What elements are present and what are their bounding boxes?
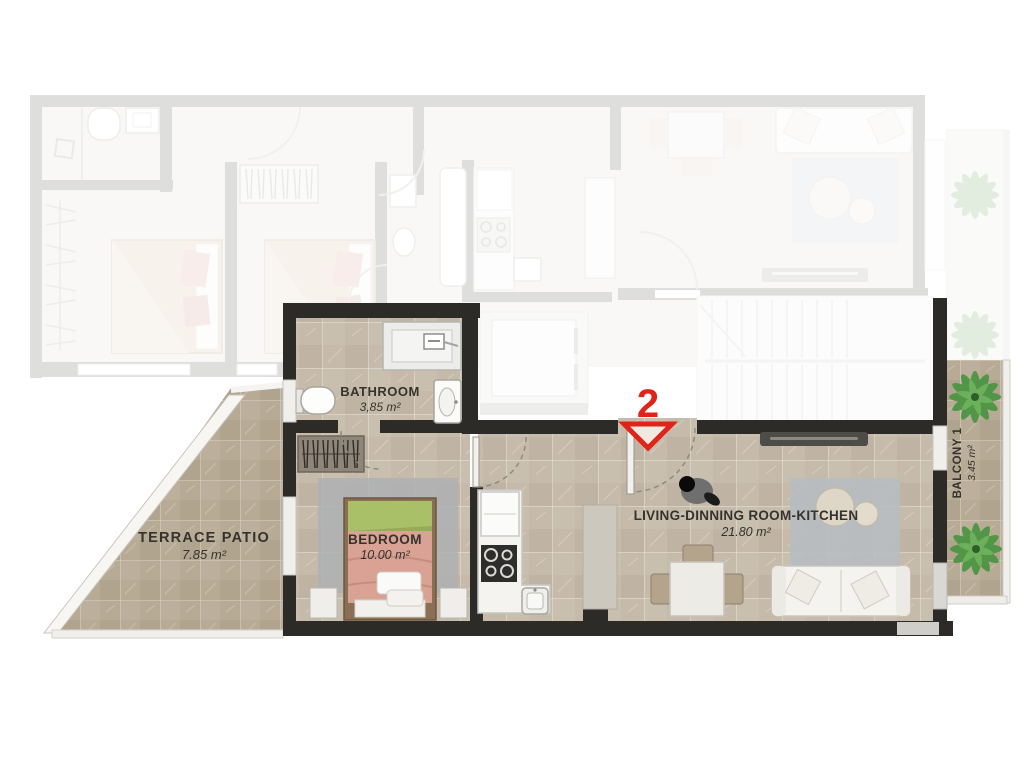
faded-closet [240, 165, 318, 203]
toilet-icon [296, 387, 335, 414]
label-balcony: BALCONY 1 [952, 428, 964, 499]
cooktop-icon [481, 545, 517, 582]
room-terrace-floor [57, 382, 283, 633]
bathroom-sink-icon [434, 380, 461, 423]
label-terrace-area: 7.85 m² [182, 547, 227, 562]
terrace-border-bottom [52, 630, 283, 638]
floor-plan-canvas: 2 BATHROOM 3,85 m² BEDROOM 10.00 m² TERR… [0, 0, 1024, 768]
nightstand-left [310, 588, 337, 618]
label-living-area: 21.80 m² [720, 525, 771, 539]
floor-plan-page: 2 BATHROOM 3,85 m² BEDROOM 10.00 m² TERR… [0, 0, 1024, 768]
tv-stand-icon [760, 432, 868, 446]
balcony-door-bottom [897, 622, 939, 635]
label-bedroom-area: 10.00 m² [360, 548, 410, 562]
bedroom-door-leaf [473, 437, 479, 487]
faded-neighbor-unit [30, 95, 1010, 424]
faded-landing [480, 312, 588, 415]
sofa-icon [772, 566, 910, 616]
faded-stairs [697, 296, 930, 424]
bathroom-window [283, 380, 296, 422]
label-bathroom: BATHROOM [340, 384, 420, 399]
living-window [933, 426, 947, 470]
kitchen-sink-icon [522, 588, 548, 614]
balcony-border-bottom [947, 596, 1007, 604]
kitchen-peninsula [583, 505, 617, 609]
fridge-icon [481, 492, 519, 536]
label-bathroom-area: 3,85 m² [360, 400, 402, 414]
label-bedroom: BEDROOM [348, 532, 422, 547]
balcony-door [933, 563, 947, 609]
entrance-unit-number: 2 [637, 382, 659, 426]
wardrobe-icon [298, 436, 364, 472]
bathroom-door-gap [338, 420, 380, 433]
faded-bed1 [112, 240, 222, 353]
label-terrace: TERRACE PATIO [138, 530, 270, 546]
nightstand-right [440, 588, 467, 618]
label-balcony-area: 3.45 m² [966, 445, 978, 481]
bedroom-window [283, 497, 296, 575]
label-living: LIVING-DINNING ROOM-KITCHEN [634, 508, 859, 523]
balcony-rail-right [1003, 360, 1010, 603]
faded-balcony-upper [947, 130, 1010, 360]
